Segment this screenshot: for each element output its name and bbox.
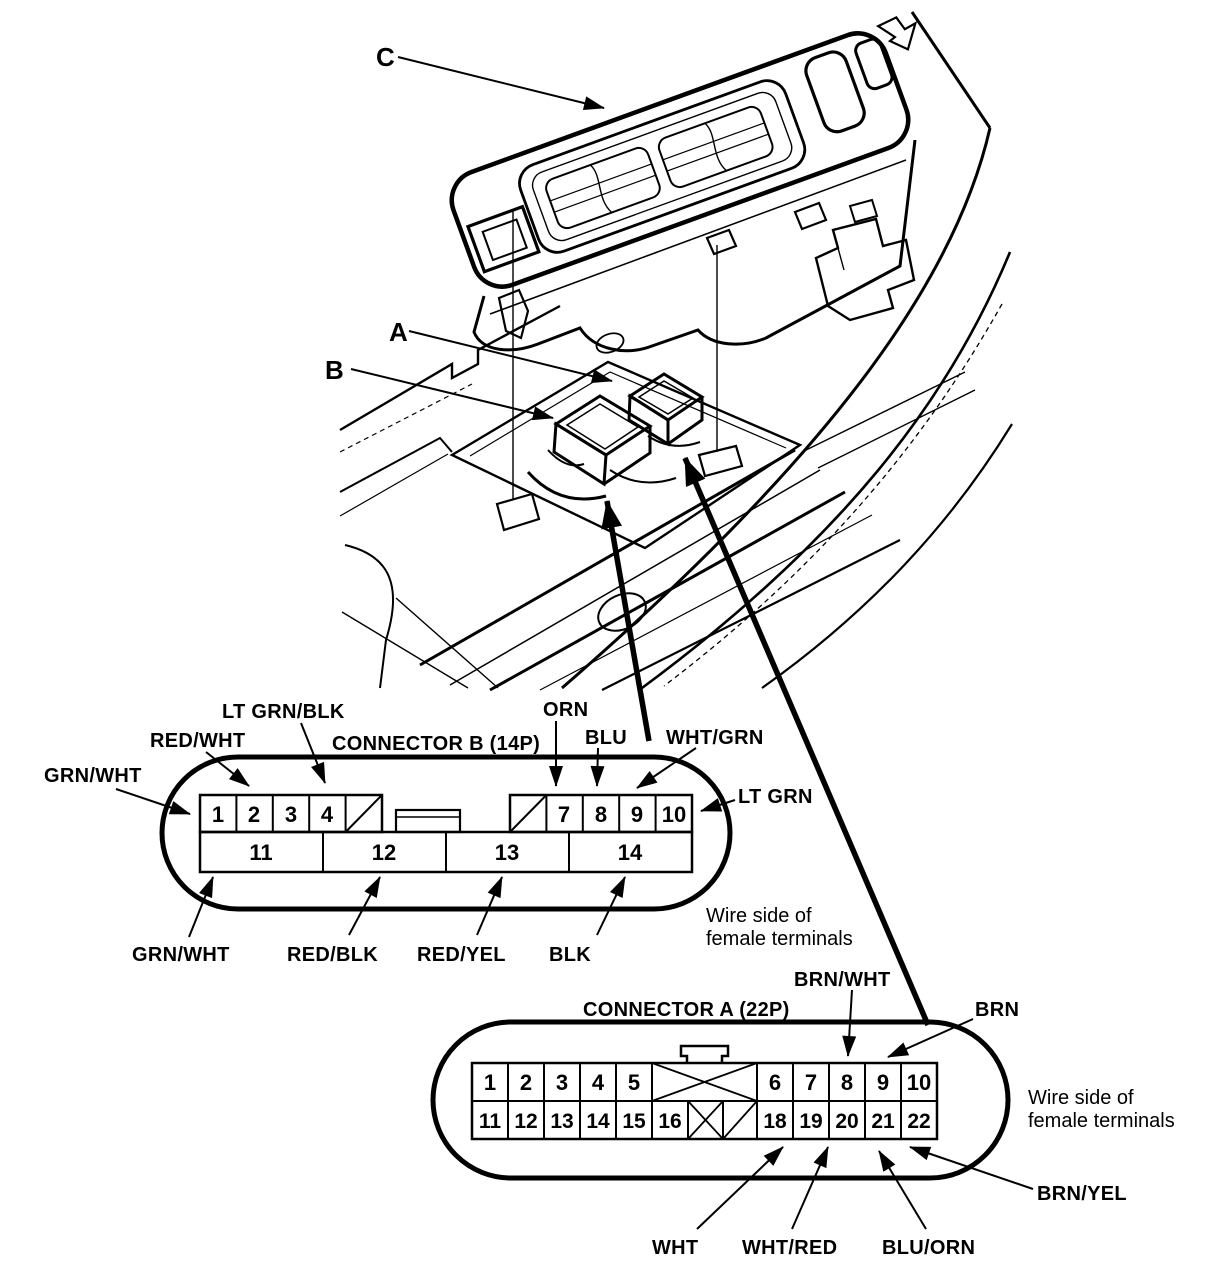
wire-label-orn: ORN — [543, 699, 588, 721]
switch-mount-tab-center — [707, 230, 736, 254]
switch-assembly-drawing — [443, 12, 952, 351]
connector-b-title: CONNECTOR B (14P) — [332, 733, 540, 755]
wire-arrow-lt-grn-blk — [301, 723, 325, 783]
connector-a-pin-3: 3 — [556, 1070, 568, 1095]
connector-a-note-line2: female terminals — [1028, 1110, 1175, 1132]
wire-arrow-lt-grn — [701, 800, 735, 811]
wire-label-red-blk: RED/BLK — [287, 944, 378, 966]
wire-label-blu: BLU — [585, 727, 627, 749]
connector-a-pin-9: 9 — [877, 1070, 889, 1095]
callout-a-label: A — [389, 317, 408, 347]
window-rocker-switch-right — [656, 104, 775, 190]
connector-b-pin-14: 14 — [618, 840, 643, 865]
connector-b-pin-10: 10 — [662, 802, 686, 827]
connector-a-pin-10: 10 — [907, 1070, 931, 1095]
connector-b-pin-13: 13 — [495, 840, 519, 865]
wire-arrow-red-yel — [477, 877, 502, 935]
connector-b-note-line2: female terminals — [706, 928, 853, 950]
connector-a-pin-15: 15 — [622, 1110, 646, 1133]
wire-label-lt-grn: LT GRN — [738, 786, 813, 808]
service-manual-figure: C A B 1 2 3 4 7 8 9 10 11 12 13 14 CONNE… — [0, 0, 1216, 1264]
connector-a-pin-19: 19 — [799, 1110, 822, 1133]
switch-bezel-outline — [443, 25, 916, 295]
connector-b-pin-4: 4 — [321, 802, 334, 827]
wire-arrow-wht-grn — [637, 748, 696, 788]
connector-b-pin-11: 11 — [249, 840, 272, 865]
connector-b-pin-9: 9 — [631, 802, 643, 827]
panel-clip-hole-left — [497, 494, 539, 530]
armrest-cutout-opening — [452, 362, 800, 548]
connector-a-title: CONNECTOR A (22P) — [583, 999, 790, 1021]
panel-sweep-line-2 — [642, 252, 1010, 688]
connector-a-pin-8: 8 — [841, 1070, 853, 1095]
wire-label-red-yel: RED/YEL — [417, 944, 506, 966]
connector-a-pin-20: 20 — [835, 1110, 858, 1133]
connector-a-pin-11: 11 — [479, 1110, 502, 1133]
connector-a-pin-22: 22 — [907, 1110, 930, 1133]
connector-a-pin-4: 4 — [592, 1070, 605, 1095]
connector-b-pin-1: 1 — [212, 802, 224, 827]
connector-a-diagram: 1 2 3 4 5 6 7 8 9 10 11 12 13 14 15 16 1… — [433, 969, 1175, 1259]
connector-a-pin-16: 16 — [658, 1110, 681, 1133]
wire-arrow-wht — [697, 1147, 783, 1229]
wire-label-blu-orn: BLU/ORN — [882, 1237, 975, 1259]
connector-a-blocked-cell-top — [652, 1063, 757, 1101]
connector-b-blocked-cell-left — [346, 795, 382, 832]
panel-clip-hole-right — [699, 446, 742, 476]
wire-label-grn-wht-top: GRN/WHT — [44, 765, 142, 787]
connector-b-pin-3: 3 — [285, 802, 297, 827]
connector-b-pin-8: 8 — [595, 802, 607, 827]
wire-arrow-brn-yel — [910, 1147, 1033, 1189]
panel-lower-contour — [345, 545, 393, 688]
callout-a-arrow — [409, 331, 612, 381]
lock-switch-opening-inner — [483, 220, 527, 261]
wiring-diagram-canvas: C A B 1 2 3 4 7 8 9 10 11 12 13 14 CONNE… — [0, 0, 1216, 1264]
rocker-left-detail-lines — [550, 164, 656, 212]
wire-label-brn-yel: BRN/YEL — [1037, 1183, 1127, 1205]
connector-a-pin-12: 12 — [514, 1110, 537, 1133]
panel-corner-edge — [912, 12, 990, 128]
connector-b-pin-7: 7 — [558, 802, 570, 827]
wire-label-lt-grn-blk: LT GRN/BLK — [222, 701, 345, 723]
connector-a-pin-14: 14 — [586, 1110, 610, 1133]
connector-boxes-drawing — [554, 374, 702, 484]
rocker-right-detail-lines — [663, 123, 769, 171]
connector-b-box-sides — [554, 424, 650, 484]
connector-b-pin-2: 2 — [248, 802, 260, 827]
connector-a-note-line1: Wire side of — [1028, 1087, 1134, 1109]
switch-mount-tab-right — [795, 203, 826, 229]
wire-label-red-wht: RED/WHT — [150, 730, 245, 752]
switch-recess-inner — [529, 89, 796, 245]
connector-a-pin-6: 6 — [769, 1070, 781, 1095]
wire-label-brn-wht: BRN/WHT — [794, 969, 891, 991]
connector-b-pin-12: 12 — [372, 840, 396, 865]
armrest-band-line-4 — [540, 515, 872, 690]
lock-switch-opening-outer — [468, 207, 539, 272]
wire-arrow-blk — [597, 877, 625, 935]
connector-a-pin-7: 7 — [805, 1070, 817, 1095]
connector-a-blocked-cell-bottom-slash — [723, 1101, 757, 1139]
connector-b-bottom-dividers — [323, 832, 569, 872]
wire-arrow-brn — [888, 1019, 973, 1057]
connector-a-pin-1: 1 — [484, 1070, 496, 1095]
connector-a-pin-2: 2 — [520, 1070, 532, 1095]
wire-label-wht-grn: WHT/GRN — [666, 727, 764, 749]
connector-b-blocked-cell-right — [510, 795, 546, 832]
wire-arrow-grn-wht-bottom — [189, 877, 213, 937]
connector-b-note-line1: Wire side of — [706, 905, 812, 927]
wire-label-grn-wht-bottom: GRN/WHT — [132, 944, 230, 966]
wire-arrow-wht-red — [792, 1147, 828, 1229]
armrest-band-right-lines — [802, 372, 975, 468]
wire-label-wht: WHT — [652, 1237, 698, 1259]
connector-a-pin-5: 5 — [628, 1070, 640, 1095]
wire-arrow-blu — [597, 748, 598, 786]
wire-arrow-blu-orn — [879, 1151, 926, 1229]
connector-a-lock-tab — [681, 1046, 728, 1063]
callout-b-label: B — [325, 355, 344, 385]
wire-arrow-red-blk — [349, 877, 380, 935]
rocker-right-split-line — [705, 122, 727, 172]
connector-b-diagram: 1 2 3 4 7 8 9 10 11 12 13 14 CONNECTOR B… — [44, 699, 853, 966]
connector-a-pin-18: 18 — [763, 1110, 787, 1133]
rocker-left-split-line — [590, 164, 612, 214]
connector-a-pin-21: 21 — [871, 1110, 895, 1133]
connector-b-lock-tab — [396, 810, 460, 832]
callout-c-arrow — [398, 57, 604, 108]
wire-label-wht-red: WHT/RED — [742, 1237, 837, 1259]
window-rocker-switch-left — [543, 145, 662, 231]
callout-c-label: C — [376, 42, 395, 72]
wire-arrow-grn-wht-top — [116, 789, 190, 814]
wire-label-brn: BRN — [975, 999, 1019, 1021]
projection-lines — [513, 210, 717, 500]
connector-a-blocked-cell-bottom-x — [688, 1101, 723, 1139]
connector-a-pin-13: 13 — [550, 1110, 573, 1133]
small-switch-opening — [853, 37, 894, 91]
wire-label-blk: BLK — [549, 944, 591, 966]
panel-lower-lines — [342, 598, 498, 688]
